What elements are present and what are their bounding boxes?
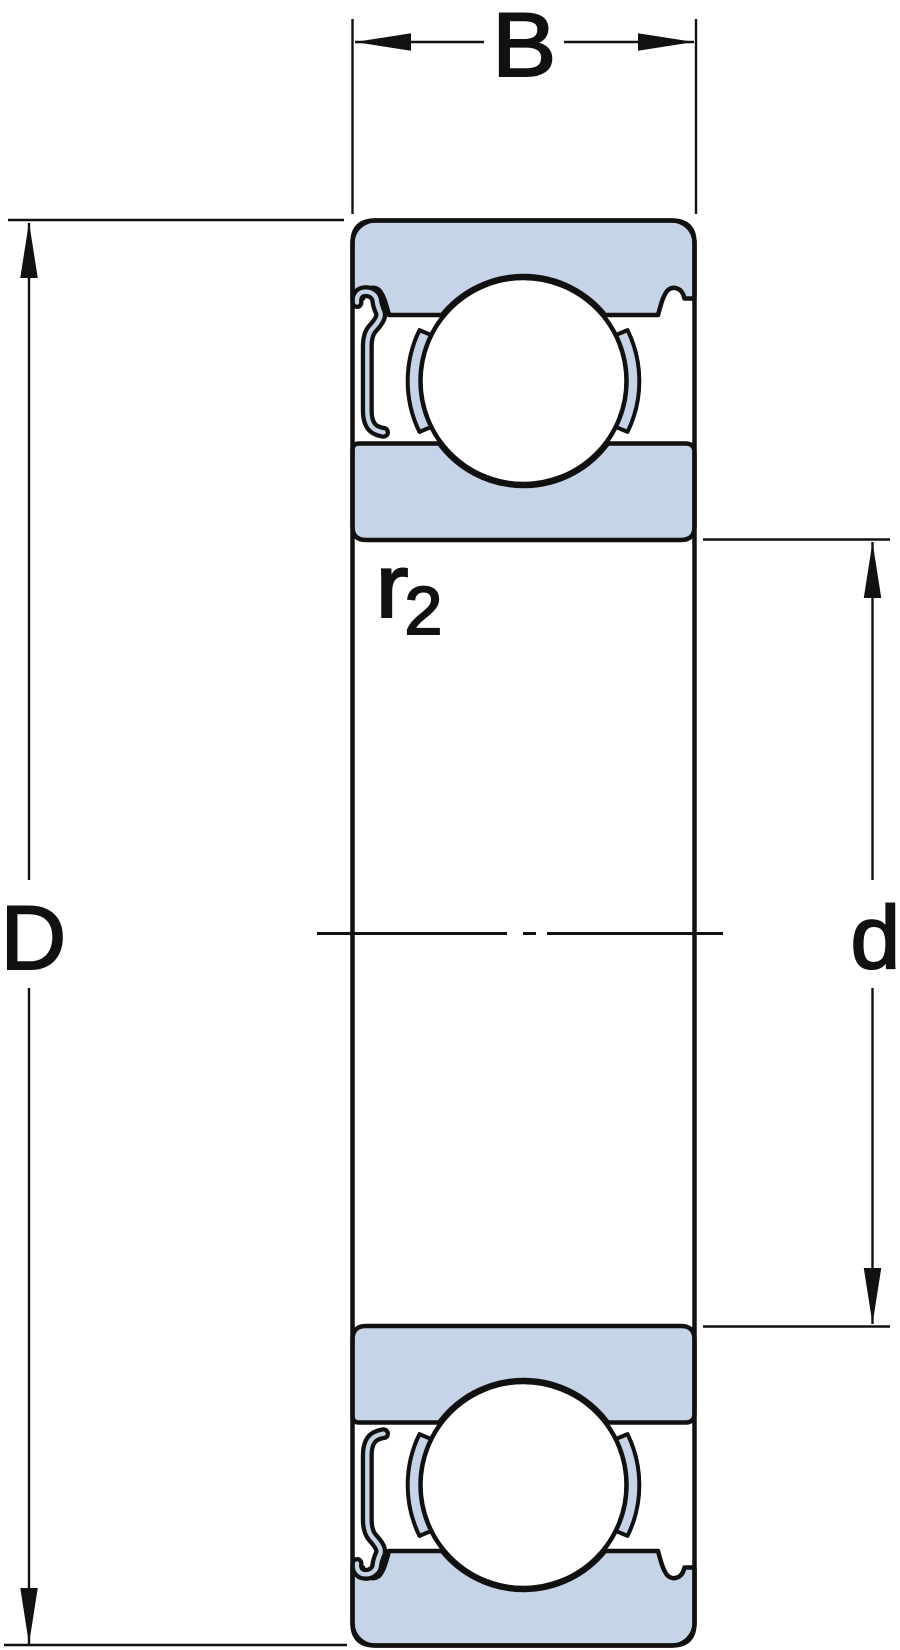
svg-text:2: 2 <box>405 573 443 649</box>
svg-text:B: B <box>492 0 556 95</box>
svg-text:D: D <box>1 888 67 989</box>
svg-text:d: d <box>851 887 900 987</box>
